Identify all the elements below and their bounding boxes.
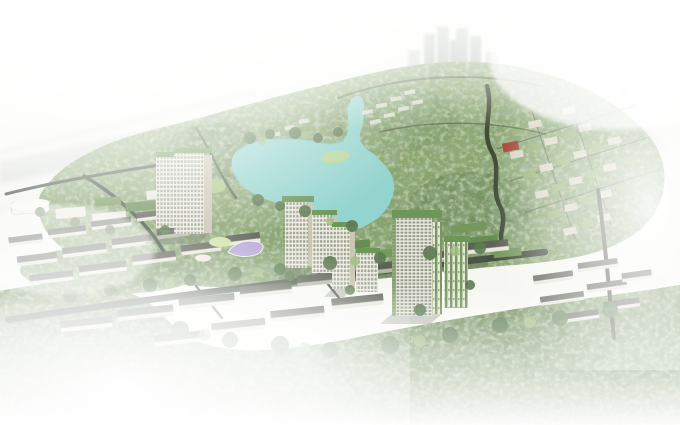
aerial-masterplan-render: Hazy aerial CGI master-plan render of a … bbox=[0, 0, 680, 425]
fog-veil bbox=[0, 0, 680, 425]
mist-overlays bbox=[0, 0, 680, 425]
render-canvas: Hazy aerial CGI master-plan render of a … bbox=[0, 0, 680, 425]
